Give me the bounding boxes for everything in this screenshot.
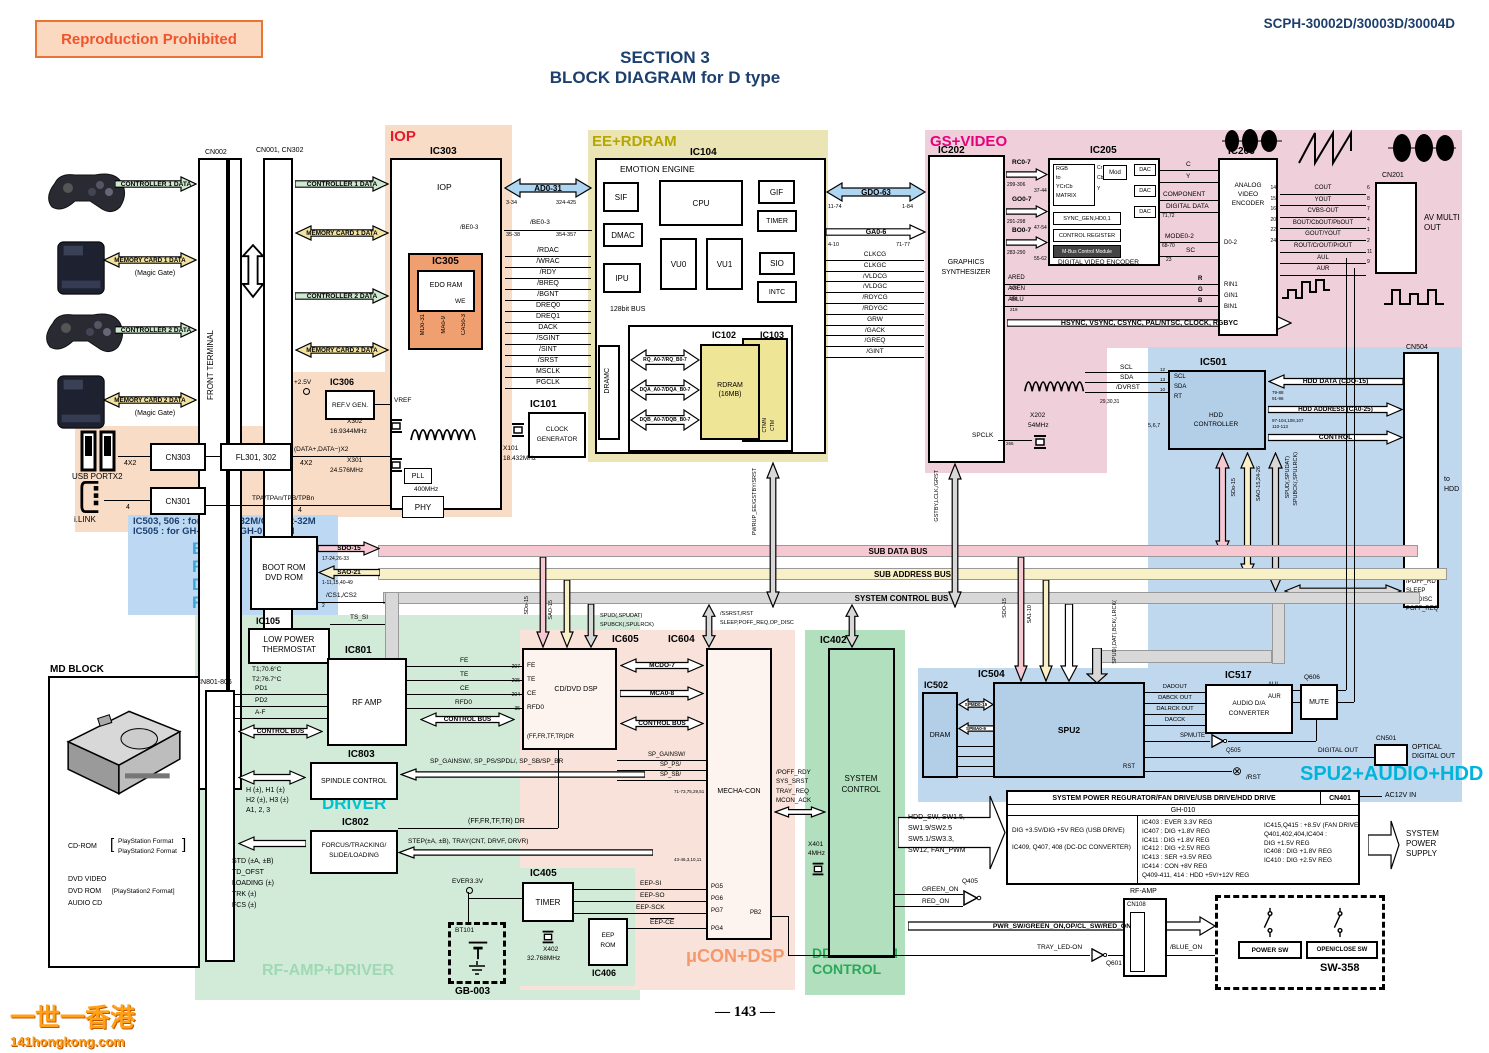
ic517-label: IC517 xyxy=(1225,670,1252,681)
y-label: Y xyxy=(1097,187,1100,193)
sps-arrow xyxy=(1368,820,1400,870)
std-signal-label: LOADING (±) xyxy=(232,878,292,889)
power-sw-box[interactable]: POWER SW xyxy=(1238,941,1302,959)
cn201-pins: 687412119 xyxy=(1367,183,1375,268)
gdo-63-label: GDO-63 xyxy=(826,182,926,202)
av-pin-label: 24 xyxy=(1264,236,1276,247)
step-label: STEP(±A, ±B), TRAY(CNT, DRVF, DRVR) xyxy=(408,838,528,845)
dvdvideo-label: DVD VIDEO xyxy=(68,876,107,884)
sao15-riser xyxy=(1240,452,1255,580)
sub-data-bus: SUB DATA BUS xyxy=(378,545,1418,557)
region-label-rfamp: RF-AMP+DRIVER xyxy=(262,962,394,980)
t2-label: T2;76.7°C xyxy=(252,676,281,683)
controller2-data-label: CONTROLLER 2 DATA xyxy=(115,322,197,338)
iop-signal-label: /WRAC xyxy=(505,257,591,268)
rst2-label: /RST xyxy=(1246,774,1261,781)
matrix-label2: to xyxy=(1056,175,1061,181)
dmac-block: DMAC xyxy=(603,223,643,247)
pin-label: 23 xyxy=(1166,258,1172,264)
arrow-shape xyxy=(948,463,962,608)
dsp-control-bus-arrow: CONTROL BUS xyxy=(620,716,704,731)
r-label: R xyxy=(1198,276,1202,283)
q405-label: Q405 xyxy=(962,878,978,885)
timer-block: TIMER xyxy=(757,210,797,232)
wire xyxy=(772,916,788,917)
pll-label: PLL xyxy=(405,469,431,483)
mod-label: Mod xyxy=(1104,166,1126,179)
spindle-bus-arrow xyxy=(238,770,306,785)
pd2-label: PD2 xyxy=(255,697,268,704)
iop-chip-label: IOP xyxy=(437,183,452,192)
gif-block: GIF xyxy=(758,180,795,204)
ipu-label: IPU xyxy=(605,265,639,291)
wire xyxy=(118,456,150,457)
system-control-bus-label: SYSTEM CONTROL BUS xyxy=(855,594,949,603)
agen-label: AGEN xyxy=(1008,286,1025,293)
wire xyxy=(1293,702,1300,703)
rdram-label2: (16MB) xyxy=(704,391,756,399)
ctrlreg-label: CONTROL REGISTER xyxy=(1054,230,1120,241)
ic501-sda-label: SDA xyxy=(1174,384,1186,391)
spmd-arrow: SPMD0-15 xyxy=(958,698,994,711)
optical-label2: DIGITAL OUT xyxy=(1412,753,1455,761)
sc-label: SC xyxy=(1186,247,1195,254)
caso3-label: CASo-3 xyxy=(461,314,467,335)
x101-label: X101 xyxy=(503,445,518,452)
q601-label: Q601 xyxy=(1106,960,1122,967)
ic801-block: RF AMP xyxy=(327,658,407,746)
model-number: SCPH-30002D/30003D/30004D xyxy=(1180,16,1455,31)
clock-label1: CLOCK xyxy=(532,426,582,433)
ilink-label: i.LINK xyxy=(74,516,96,525)
pin-label: 17-24,26-33 xyxy=(322,557,349,563)
mod-block: Mod xyxy=(1103,165,1127,180)
vu1-label: VU1 xyxy=(708,240,741,288)
c-out-label: C xyxy=(1186,161,1191,168)
x301-crystal-icon xyxy=(388,455,404,480)
power-sw-signal: SW12, FAN_PWM xyxy=(908,845,998,856)
mao9-label: MAo-9 xyxy=(441,316,447,334)
arrow-shape xyxy=(238,836,306,851)
iop-signal-label: MSCLK xyxy=(505,367,591,378)
wire xyxy=(617,760,706,761)
region-label-ucon: μCON+DSP xyxy=(686,946,785,967)
wire xyxy=(398,828,558,829)
cn501-block xyxy=(1374,744,1408,766)
wire xyxy=(1145,771,1232,772)
pwrsw-arrow: PWR_SW/GREEN_ON,OP/CL_SW/RED_ON xyxy=(908,916,1216,936)
tssi-label: TS_SI xyxy=(350,614,368,621)
arrow-shape xyxy=(560,580,574,648)
wire xyxy=(1354,268,1355,702)
reg-entry: IC408 : DIG +1.8V REG xyxy=(1264,848,1360,857)
controller2-data-label2: CONTROLLER 2 DATA xyxy=(295,288,389,304)
ac12v-label: AC12V IN xyxy=(1385,792,1416,800)
mute-block: MUTE xyxy=(1300,684,1338,720)
v25-terminal xyxy=(303,388,310,395)
mcd-label: MCDO-7 xyxy=(620,658,704,673)
audio-dac-label2: CONVERTER xyxy=(1209,710,1289,717)
control-bus-label2: CONTROL BUS xyxy=(420,712,515,727)
ga0-6-label: GA0-6 xyxy=(826,224,926,240)
wire xyxy=(574,901,706,902)
wire xyxy=(617,780,706,781)
rin1-label: RIN1 xyxy=(1224,282,1238,289)
eepsi-label: EEP-SI xyxy=(640,880,661,887)
intc-label: INTC xyxy=(759,283,795,301)
cn801-label: CN801-806 xyxy=(196,679,232,687)
usb-4x2-label2: 4X2 xyxy=(300,460,312,468)
pin-label: 29,30,31 xyxy=(1100,400,1119,406)
x202-crystal-icon xyxy=(1032,432,1048,457)
terminal-link-arrow xyxy=(241,240,265,307)
ic605-ffdr-label: (FF,FR,TF,TR)DR xyxy=(527,734,574,741)
ic202-block: GRAPHICS SYNTHESIZER xyxy=(928,155,1005,463)
dac2-label: DAC xyxy=(1135,186,1155,196)
syncgen-label: SYNC_GEN,HD0,1 xyxy=(1054,213,1120,224)
q606-label: Q606 xyxy=(1304,674,1320,681)
arrow-shape xyxy=(1086,648,1108,684)
std-signal-label: TD_OFST xyxy=(232,867,292,878)
timer-label: TIMER xyxy=(524,884,572,920)
battery-icon xyxy=(463,937,493,961)
page-title: SECTION 3 xyxy=(495,48,835,68)
wire xyxy=(468,898,522,899)
focus-bus-arrow xyxy=(238,836,306,851)
wire xyxy=(1005,306,1218,307)
dac-signal-label: DACCK xyxy=(1145,715,1205,726)
bt101-block: BT101 xyxy=(448,922,506,984)
sysctl-riser xyxy=(845,604,859,648)
mecha-riser xyxy=(702,604,716,648)
av-outputs: COUTYOUTCVBS-OUTBOUT/CbOUT/PbOUTGOUT/YOU… xyxy=(1280,183,1366,276)
poff-signal-label: POFF_REQ xyxy=(1406,605,1446,614)
wire xyxy=(504,230,592,231)
wire xyxy=(1145,741,1210,742)
usb-4x2-label: 4X2 xyxy=(124,460,136,468)
sdo15-riser xyxy=(1215,452,1230,557)
pb2-label: PB2 xyxy=(750,910,761,917)
mdblock-label: MD BLOCK xyxy=(50,664,104,675)
cn303-label: CN303 xyxy=(152,445,204,469)
memcard2-data-label2: MEMORY CARD 2 DATA xyxy=(295,342,389,358)
control-bus-label1: CONTROL BUS xyxy=(238,724,323,739)
edoram-block: EDO RAM WE xyxy=(417,270,475,312)
dac-signal-label: DADOUT xyxy=(1145,682,1205,693)
wire xyxy=(1338,702,1354,703)
control-bus-arrow1: CONTROL BUS xyxy=(238,724,323,739)
rc0-7-label: RC0-7 xyxy=(1012,159,1031,166)
ipu-block: IPU xyxy=(603,263,641,293)
rq-bus-arrow: RQ_A0-7/RQ_B0-7 xyxy=(630,349,700,371)
openclose-sw-box[interactable]: OPEN/CLOSE SW xyxy=(1306,941,1378,959)
arrow-shape xyxy=(1006,168,1048,181)
cn801-block xyxy=(205,690,235,962)
gs-signal-label: /VLDGC xyxy=(826,282,924,293)
pulse-waveform-icon xyxy=(1382,284,1460,315)
be0-3-label: /BE0-3 xyxy=(530,219,550,226)
ilink-4-label: 4 xyxy=(126,504,130,512)
vu0-block: VU0 xyxy=(660,238,697,290)
avmulti-label2: OUT xyxy=(1424,224,1441,233)
sdo15-left-label: SDo-15 xyxy=(524,596,530,615)
openclose-switch-icon xyxy=(1330,906,1350,938)
arrow-shape xyxy=(774,806,826,818)
sdo-arrow: SDO-15 xyxy=(318,541,380,556)
reg-col2: IC403 : EVER 3.3V REGIC407 : DIG +1.8V R… xyxy=(1142,819,1260,881)
wire xyxy=(235,706,327,707)
disc-drive-image xyxy=(58,696,190,813)
hdd-ctl-label1: HDD xyxy=(1180,412,1252,419)
reg-entry: IC407 : DIG +1.8V REG xyxy=(1142,828,1260,837)
ic406-label: IC406 xyxy=(592,968,616,978)
power-reg-title: SYSTEM POWER REGURATOR/FAN DRIVE/USB DRI… xyxy=(1008,792,1320,805)
gs-inductor-icon xyxy=(1023,366,1087,405)
bootrom-label1: BOOT ROM xyxy=(254,564,314,573)
ssrst-label: /SSRST,/RST xyxy=(720,611,753,617)
mode0-2-label: MODE0-2 xyxy=(1165,233,1194,240)
x202-freq-label: 54MHz xyxy=(1028,422,1049,429)
rfamp-cn108-title: RF-AMP xyxy=(1130,888,1157,896)
gif-label: GIF xyxy=(760,182,793,202)
magicgate2-label: (Magic Gate) xyxy=(115,410,195,418)
cs-label: /CS1,/CS2 xyxy=(326,592,357,599)
cn108-block: CN108 xyxy=(1123,898,1167,977)
iop-signal-label: DACK xyxy=(505,323,591,334)
ga0-6-arrow: GA0-6 xyxy=(826,224,926,240)
phy-label: PHY xyxy=(403,497,443,517)
pin-label: 219 xyxy=(1010,308,1018,313)
pin-label: 71-77 xyxy=(896,242,910,248)
spclk-label: SPCLK xyxy=(972,432,993,439)
spmd-label: SPMD0-15 xyxy=(958,698,994,711)
wire xyxy=(292,456,390,457)
rfd0-wire-label: RFD0 xyxy=(455,699,472,706)
ic406-block: EEP ROM xyxy=(588,918,628,966)
sao15-riser-label: SAO-15,24-26 xyxy=(1256,466,1262,501)
av-out-label: AUL xyxy=(1280,253,1366,265)
arrow-shape xyxy=(1240,452,1255,580)
iop-signal-label: PGCLK xyxy=(505,378,591,389)
blueon-label: /BLUE_ON xyxy=(1170,944,1202,951)
emotion-engine-label: EMOTION ENGINE xyxy=(620,165,695,174)
arrow-shape xyxy=(398,846,653,859)
rfamp-chip-label: RF AMP xyxy=(329,660,405,744)
eepso-label: EEP-SO xyxy=(640,892,665,899)
cn201-block xyxy=(1375,182,1417,274)
power-sw-signal: SW1.9/SW2.5 xyxy=(908,823,998,834)
wire xyxy=(1160,200,1218,201)
burst-waveform-icon2 xyxy=(1388,132,1456,169)
x402-freq-label: 32.768MHz xyxy=(527,955,560,962)
gb003-label: GB-003 xyxy=(455,986,490,997)
ic104-label: IC104 xyxy=(690,147,717,158)
v25-label: +2.5V xyxy=(294,379,311,386)
arrow-shape xyxy=(238,770,306,785)
reg-entry: DIG +3.5V/DIG +5V REG (USB DRIVE) xyxy=(1012,822,1134,839)
spg3-label: SP_SB/ xyxy=(660,772,681,779)
refv-label: REF.V GEN. xyxy=(327,392,373,418)
cn301-label: CN301 xyxy=(152,489,204,513)
region-label-iop: IOP xyxy=(390,128,416,145)
power-sw-signal: HDD_SW, SW1.5, xyxy=(908,812,998,823)
x401-freq-label: 4MHz xyxy=(808,850,825,857)
ic306-block: REF.V GEN. xyxy=(325,390,375,420)
iop-signal-label: /RDY xyxy=(505,268,591,279)
mechacon-label: MECHA-CON xyxy=(710,788,768,796)
fmt3-label: [PlayStation2 Format] xyxy=(112,888,175,895)
std-signal-label: FCS (±) xyxy=(232,900,292,911)
sub-data-bus-label: SUB DATA BUS xyxy=(869,547,928,556)
wire xyxy=(1293,690,1300,691)
ic502-label: IC502 xyxy=(924,680,948,690)
ic802-label: IC802 xyxy=(342,817,369,828)
ic504-label: IC504 xyxy=(978,669,1005,680)
gh010-label: GH-010 xyxy=(1008,805,1358,816)
y-out-label: Y xyxy=(1186,173,1190,180)
dvdrom-label: DVD ROM xyxy=(68,888,101,896)
av-out-label: GOUT/YOUT xyxy=(1280,229,1366,241)
av-out-label: YOUT xyxy=(1280,195,1366,207)
controller1-data-label: CONTROLLER 1 DATA xyxy=(115,176,197,192)
region-label-dd2: CONTROL xyxy=(812,961,881,977)
memcard2-data-label: MEMORY CARD 2 DATA xyxy=(103,392,197,408)
iop-ee-signals: /RDAC/WRAC/RDY/BREQ/BGNTDREQ0DREQ1DACK/S… xyxy=(505,246,591,389)
q505-label: Q505 xyxy=(1226,748,1241,755)
spu2-label: SPU2 xyxy=(995,684,1143,776)
bracket: [ xyxy=(110,836,114,853)
reg-entry: IC414 : CON +8V REG xyxy=(1142,863,1260,872)
focus-label2: SLIDE/LOADING xyxy=(314,852,394,859)
we-label: WE xyxy=(455,298,465,305)
gs-signal-label: /GACK xyxy=(826,326,924,337)
x302-freq-label: 16.9344MHz xyxy=(330,428,367,435)
gs-signal-label: /RDYGC xyxy=(826,304,924,315)
cn201-pin-label: 11 xyxy=(1367,247,1375,258)
go0-7-arrow xyxy=(1006,205,1048,218)
sio-block: SIO xyxy=(759,252,795,275)
reg-entry: IC411 : DIG +1.8V REG xyxy=(1142,837,1260,846)
dqb-bus-arrow: DQB_A0-7/DQB_B0-7 xyxy=(630,409,700,431)
sao-label: SAO-21 xyxy=(318,565,380,580)
ee-gs-signals: CLKCGCLKGC/VLDCG/VLDGC/RDYCG/RDYGCGRW/GA… xyxy=(826,250,924,358)
spgain-arrow xyxy=(400,768,645,781)
fl301-block: FL301, 302 xyxy=(220,443,292,471)
pin-label: 3-34 xyxy=(506,200,517,206)
go0-7-label: GO0-7 xyxy=(1012,196,1032,203)
sleep-label: SLEEP,POFF_REQ,OP_DISC xyxy=(720,620,794,626)
wire xyxy=(1005,284,1218,285)
dac2-block: DAC xyxy=(1134,185,1156,197)
thermostat-label1: LOW POWER xyxy=(252,636,326,645)
h-label2: H2 (±), H3 (±) xyxy=(246,797,289,805)
gray-riser xyxy=(1272,598,1285,664)
gs-signal-label: /VLDCG xyxy=(826,272,924,283)
av-pin-label: 22 xyxy=(1264,225,1276,236)
gdo-63-bus: GDO-63 xyxy=(826,182,926,202)
af-label: A-F xyxy=(255,709,265,716)
wire xyxy=(1145,757,1374,758)
cn201-label: CN201 xyxy=(1382,172,1404,180)
dqa-bus-arrow: DQA_A0-7/DQA_B0-7 xyxy=(630,379,700,401)
av-pin-label: 20 xyxy=(1264,215,1276,226)
spmute-label: SPMUTE xyxy=(1180,733,1205,740)
cn301-block: CN301 xyxy=(150,487,206,515)
cpu-block: CPU xyxy=(659,180,743,226)
memcard1-data-label: MEMORY CARD 1 DATA xyxy=(103,252,197,268)
bo0-7-label: BO0-7 xyxy=(1012,227,1031,234)
spu-sa-label: SA1-10 xyxy=(1027,605,1033,623)
mbus-block: M-Bus Control Module xyxy=(1053,245,1121,258)
ctmn-label: CTMN xyxy=(762,418,768,432)
ic205-label: IC205 xyxy=(1090,145,1117,156)
bracket: ] xyxy=(182,836,186,853)
ic604-block: MECHA-CON PG5 PG6 PG7 PG4 PB2 xyxy=(706,648,772,940)
rc0-7-arrow xyxy=(1006,168,1048,181)
wire xyxy=(895,894,963,895)
gs-signal-label: /GREQ xyxy=(826,336,924,347)
fmt2-label: PlayStation2 Format xyxy=(118,848,177,855)
dvrst-label: /DVRST xyxy=(1116,384,1140,391)
pin-label: 5,6,7 xyxy=(1148,423,1160,429)
reg-entry: IC410 : DIG +2.5V REG xyxy=(1264,857,1360,866)
cn002-label: CN002 xyxy=(205,149,227,157)
sio-label: SIO xyxy=(761,254,793,273)
pd1-label: PD1 xyxy=(255,685,268,692)
ic105-block: LOW POWER THERMOSTAT xyxy=(248,628,330,664)
digital-out-label: DIGITAL OUT xyxy=(1318,747,1358,754)
hdd-addr-arrow: HDD ADDRESS (CA0-25) xyxy=(1268,402,1403,417)
av-pin-label: 15 xyxy=(1264,194,1276,205)
hdd-ctl-label2: CONTROLLER xyxy=(1180,421,1252,428)
ee-riser xyxy=(766,462,780,608)
region-label-spu: SPU2+AUDIO+HDD xyxy=(1300,763,1483,786)
digital-data-label: DIGITAL DATA xyxy=(1166,203,1209,210)
dram-label: DRAM xyxy=(924,694,956,776)
wire xyxy=(998,440,1032,441)
intc-block: INTC xyxy=(757,281,797,303)
iop-signal-label: /BREQ xyxy=(505,279,591,290)
sysctl-label2: CONTROL xyxy=(832,786,890,795)
ground-icon xyxy=(467,961,487,975)
cn504-label: CN504 xyxy=(1406,344,1428,352)
hsync-label: HSYNC, VSYNC, CSYNC, PAL/NTSC, CLOCK, RG… xyxy=(1007,315,1292,331)
fe-wire-label: FE xyxy=(460,657,468,664)
x301-freq-label: 24.576MHz xyxy=(330,467,363,474)
spg2-label: SP_PS/ xyxy=(660,762,681,769)
wire xyxy=(318,602,388,603)
controller1-data-label2: CONTROLLER 1 DATA xyxy=(295,176,389,192)
wire xyxy=(1338,690,1346,691)
ic501-rt-label: RT xyxy=(1174,394,1182,401)
cn201-pin-label: 9 xyxy=(1367,257,1375,268)
wire xyxy=(468,892,469,922)
spg1-label: SP_GAINSW/ xyxy=(648,752,685,759)
block-diagram-page: Reproduction Prohibited SECTION 3 BLOCK … xyxy=(0,0,1489,1053)
sub-address-bus-label: SUB ADDRESS BUS xyxy=(874,570,951,579)
ic501-label: IC501 xyxy=(1200,357,1227,368)
wire xyxy=(958,746,994,747)
mca-arrow: MCA0-8 xyxy=(620,686,704,701)
hdd-addr-label: HDD ADDRESS (CA0-25) xyxy=(1268,402,1403,417)
reg-col3: IC415,Q415 : +8.5V (FAN DRIVE)Q401,402,4… xyxy=(1264,822,1360,866)
av-out-label: ROUT/CrOUT/PrOUT xyxy=(1280,241,1366,253)
pin-label: 4-10 xyxy=(828,242,839,248)
power-sw-signals: HDD_SW, SW1.5,SW1.9/SW2.5SW5.1/SW3.3,SW1… xyxy=(908,812,998,856)
iop-signal-label: /RDAC xyxy=(505,246,591,257)
x302-label: X302 xyxy=(347,418,362,425)
sdo-label: SDO-15 xyxy=(318,541,380,556)
